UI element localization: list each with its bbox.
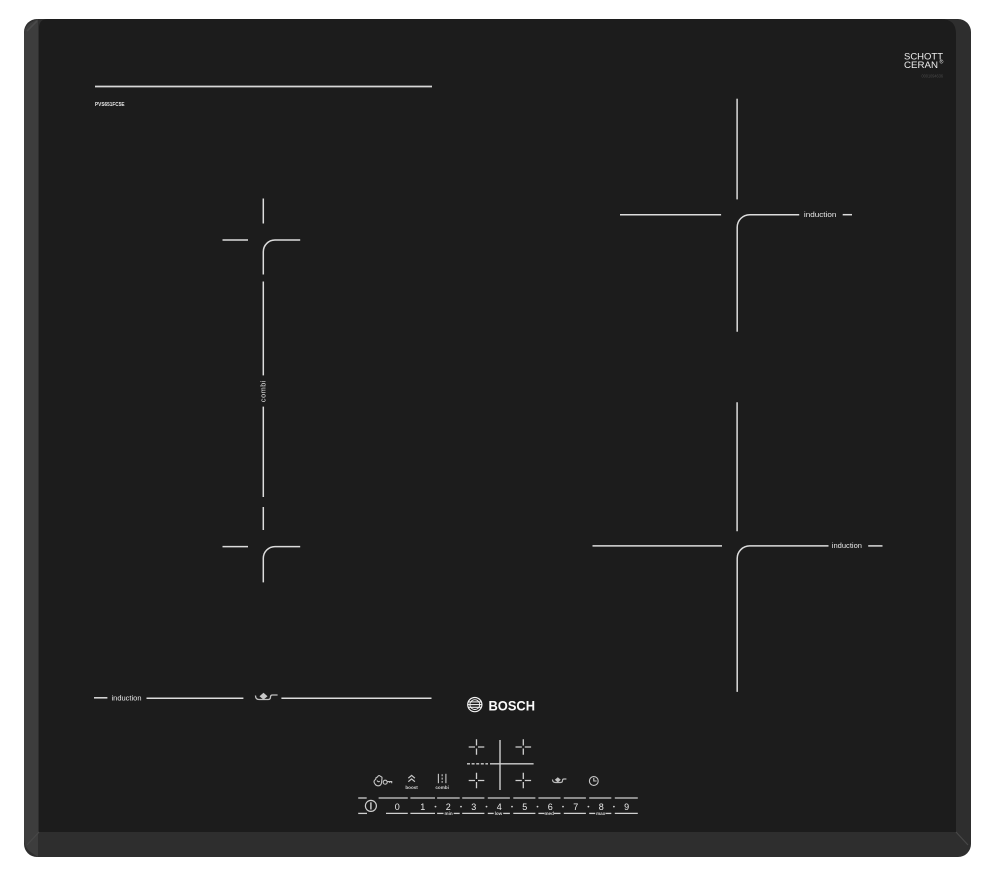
- svg-text:0: 0: [395, 802, 400, 812]
- svg-text:9: 9: [624, 802, 629, 812]
- svg-text:induction: induction: [112, 695, 142, 702]
- svg-text:BOSCH: BOSCH: [489, 698, 536, 713]
- svg-text:5: 5: [522, 802, 527, 812]
- svg-text:7: 7: [573, 802, 578, 812]
- svg-text:induction: induction: [804, 212, 837, 219]
- svg-text:CERAN: CERAN: [904, 60, 938, 70]
- svg-text:induction: induction: [832, 543, 862, 550]
- svg-text:min: min: [445, 811, 453, 816]
- svg-text:low: low: [495, 811, 503, 816]
- svg-text:3: 3: [471, 802, 476, 812]
- svg-text:med: med: [544, 811, 554, 816]
- svg-text:1: 1: [420, 802, 425, 812]
- svg-text:®: ®: [940, 59, 944, 66]
- svg-text:boost: boost: [405, 785, 418, 790]
- svg-text:combi: combi: [435, 785, 449, 790]
- svg-text:combi: combi: [259, 380, 268, 402]
- svg-text:0001094636: 0001094636: [922, 74, 944, 79]
- svg-text:max: max: [596, 811, 606, 816]
- svg-text:PVS651FC5E: PVS651FC5E: [95, 102, 125, 108]
